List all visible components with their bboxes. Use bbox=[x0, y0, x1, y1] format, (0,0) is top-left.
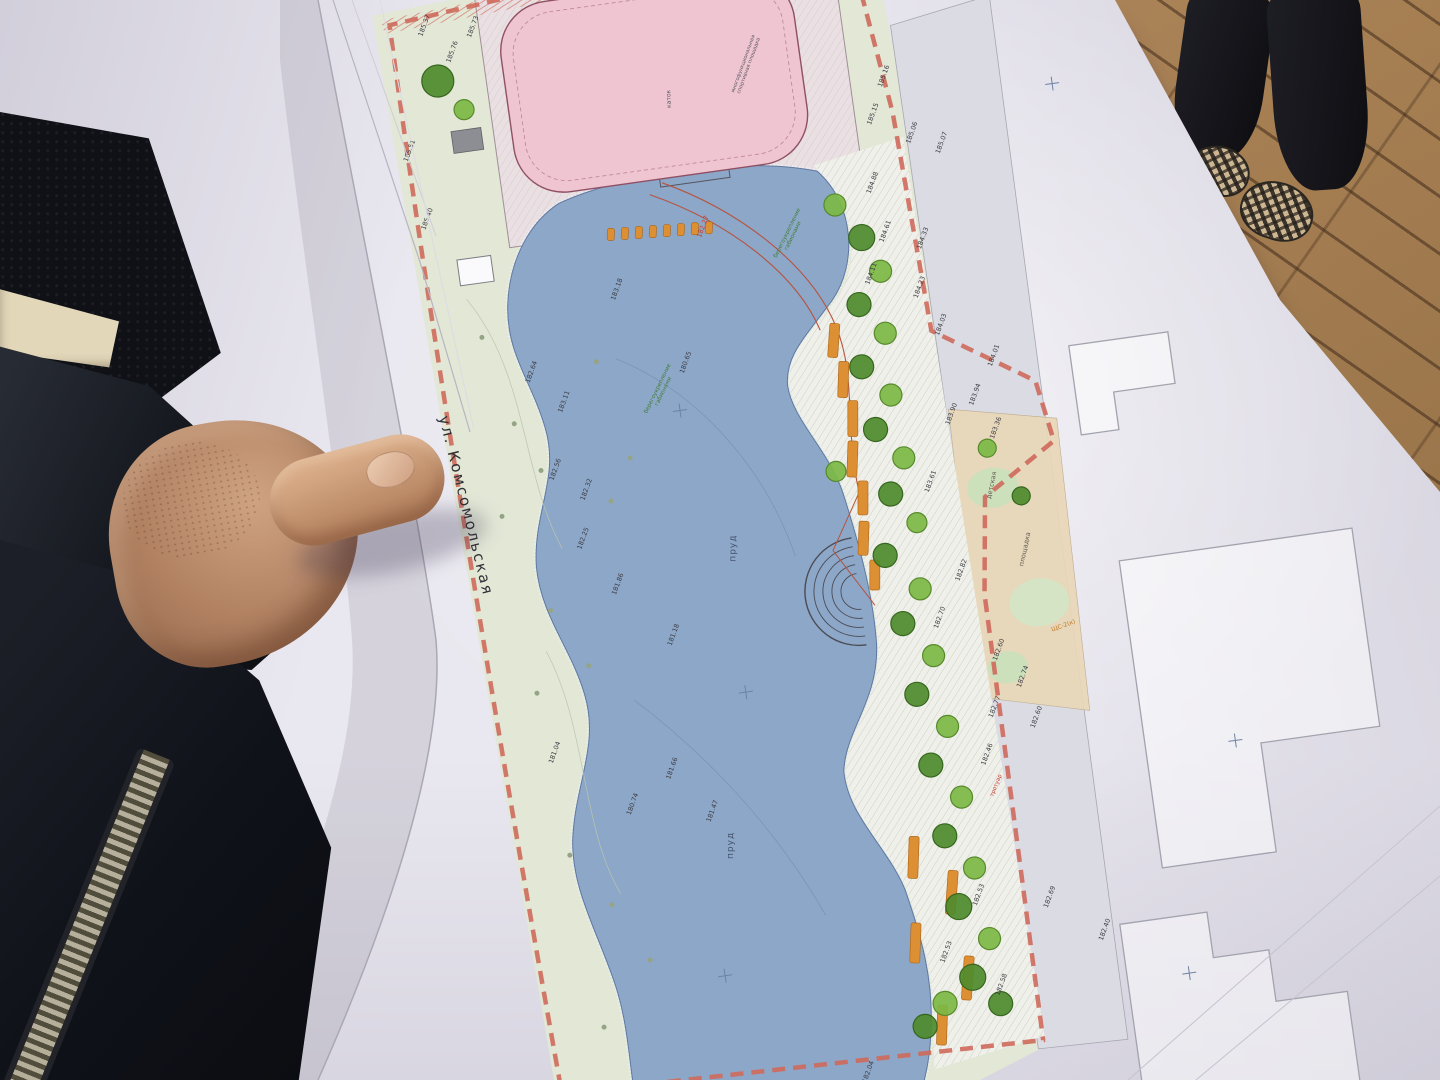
bystander-right-leg bbox=[1265, 0, 1373, 193]
svg-text:пруд: пруд bbox=[726, 832, 736, 859]
jacket-zipper bbox=[0, 747, 175, 1080]
photo-of-site-plan: 185.80183.74185.37185.73185.76185.51185.… bbox=[0, 0, 1440, 1080]
svg-text:пруд: пруд bbox=[729, 535, 739, 562]
svg-text:каток: каток bbox=[665, 89, 673, 108]
